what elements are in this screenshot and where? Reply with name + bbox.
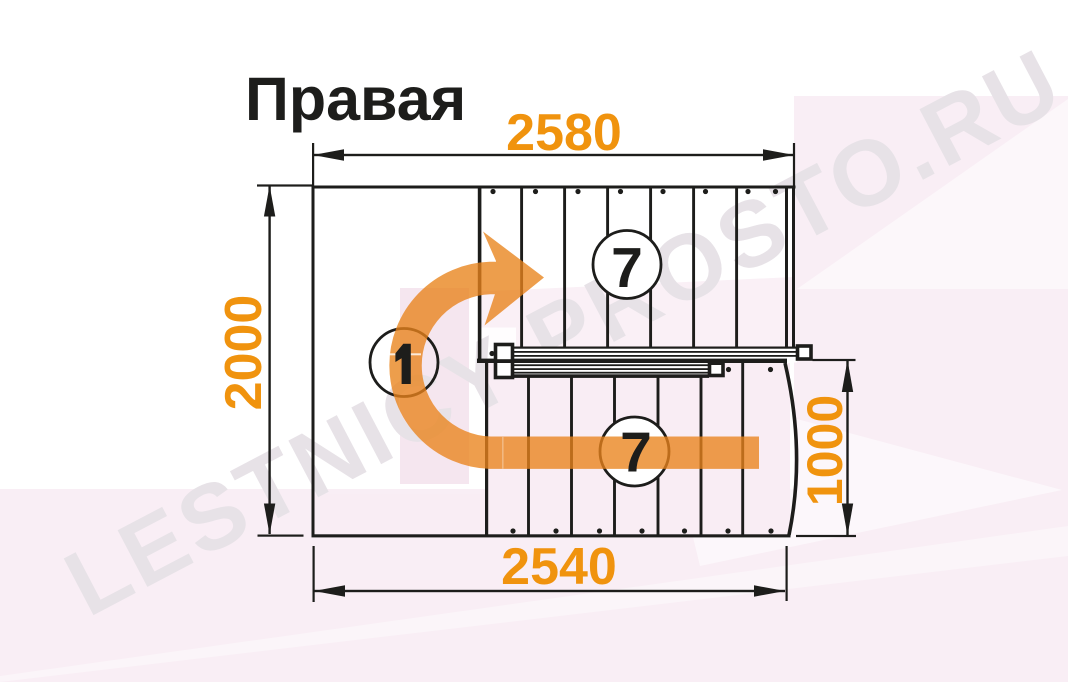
svg-text:2000: 2000 (215, 295, 273, 411)
svg-text:Правая: Правая (245, 65, 466, 133)
svg-text:7: 7 (620, 421, 652, 485)
svg-text:2540: 2540 (501, 538, 617, 596)
svg-text:7: 7 (611, 236, 643, 300)
svg-text:1000: 1000 (797, 395, 853, 506)
svg-text:2580: 2580 (506, 104, 622, 162)
